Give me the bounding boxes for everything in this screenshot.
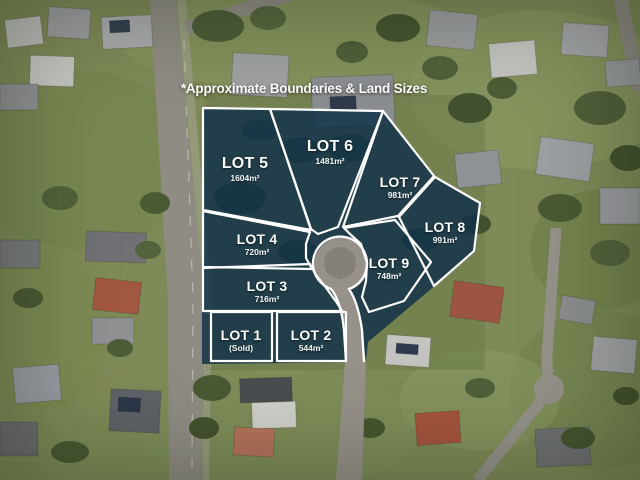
boundaries-disclaimer: *Approximate Boundaries & Land Sizes xyxy=(168,81,440,96)
aerial-subdivision-photo: *Approximate Boundaries & Land Sizes LOT… xyxy=(0,0,640,480)
aerial-background xyxy=(0,0,640,480)
